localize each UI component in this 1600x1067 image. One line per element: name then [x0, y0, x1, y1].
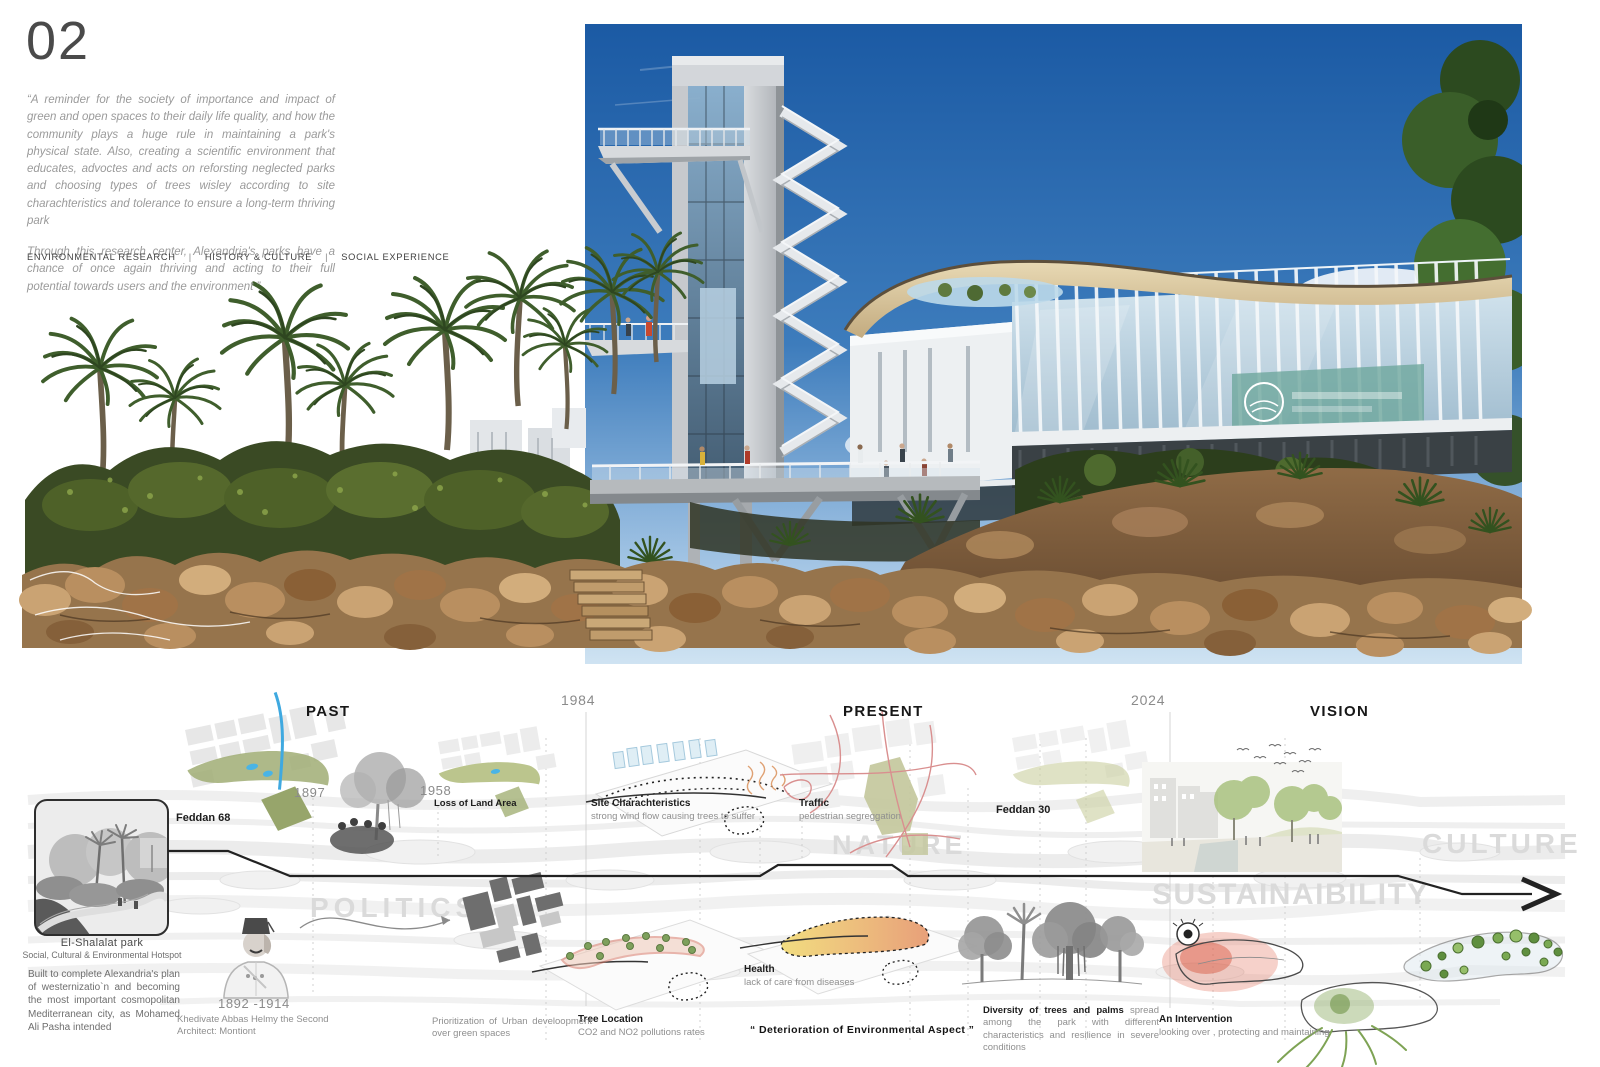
hero-render [19, 24, 1542, 664]
vision-street-render [1142, 745, 1342, 873]
loss-of-land-map [433, 722, 563, 827]
tree-location-plane [532, 920, 780, 1010]
intervention-green-blob [1278, 983, 1437, 1067]
board-artwork [0, 0, 1600, 1067]
park-photo [35, 800, 176, 935]
gray-trees-sketch [958, 902, 1144, 984]
elevator-cab [700, 288, 736, 384]
present-traffic-map [780, 711, 976, 857]
vision-green-plan [1404, 930, 1562, 981]
presentation-board: POLITICS NATURE SUSTAINAIBILITY CULTURE [0, 0, 1600, 1067]
feddan68-map [175, 680, 364, 847]
crowd-under-tree-sketch [330, 752, 426, 854]
timeline-arrow [168, 851, 1556, 909]
intervention-red-blob [1162, 919, 1303, 992]
khedivate-portrait [224, 918, 288, 998]
urban-blocks-sketch [300, 865, 573, 968]
health-plane [740, 916, 976, 994]
feddan30-map [1007, 715, 1157, 834]
